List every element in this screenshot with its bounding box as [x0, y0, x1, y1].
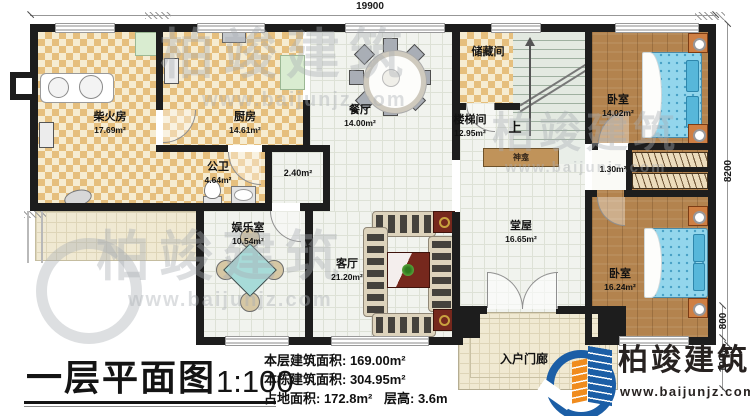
room-label-bath: 公卫4.64m² — [188, 161, 248, 185]
wall-right — [708, 24, 716, 345]
pillow-icon — [693, 234, 705, 262]
room-label-stairwell: 楼梯间12.95m² — [434, 114, 506, 138]
floor-plan-canvas: 神龛 — [0, 0, 750, 416]
wall-kitchen-south-a — [156, 145, 228, 152]
room-label-corridor: 2.40m² — [266, 168, 330, 179]
exterior-rail — [41, 211, 43, 263]
room-label-bedroom-bottom: 卧室16.24m² — [578, 268, 662, 292]
nightstand-lamp-icon — [688, 206, 708, 226]
exterior-hatch — [695, 12, 725, 20]
stat-building-area: 本栋建筑面积: 304.95m² — [264, 369, 406, 388]
window — [56, 24, 114, 32]
stair-up-arrowhead-icon — [525, 37, 535, 46]
dimension-right-label: 8200 — [724, 142, 734, 200]
dimension-top-label: 19900 — [340, 2, 400, 12]
french-door-leaf — [556, 272, 557, 308]
wall-storage-south-a — [452, 103, 466, 110]
watermark-text: 柏竣建筑 — [160, 28, 412, 82]
wall-hall-east — [585, 190, 592, 337]
title-underline — [24, 401, 276, 404]
room-label-bedroom-top: 卧室14.02m² — [578, 94, 658, 118]
room-label-living: 客厅21.20m² — [306, 258, 388, 282]
room-label-firewood: 柴火房17.69m² — [68, 111, 152, 135]
stove-burner-icon — [48, 77, 69, 98]
wall-bottom-left — [30, 203, 203, 211]
window — [492, 24, 540, 32]
brand-logo: 柏竣建筑 www.baijunjz.com — [540, 338, 750, 416]
porch-pier-left — [452, 306, 480, 338]
title-underline-thin — [24, 406, 276, 407]
plant-icon — [402, 264, 414, 276]
brand-url: www.baijunjz.com — [620, 384, 750, 399]
room-label-game: 娱乐室10.54m² — [205, 222, 291, 246]
brand-logo-building-blue-icon — [588, 346, 612, 406]
watermark-url: www.baijunjz.com — [128, 290, 333, 310]
wall-kitchen-south-b — [262, 145, 330, 152]
stat-floor-height: 层高: 3.6m — [384, 388, 448, 407]
nightstand-lamp-icon — [688, 298, 708, 318]
window — [616, 24, 698, 32]
wall-bed2-north-a — [592, 190, 597, 197]
wall-left — [30, 24, 38, 211]
chimney-flue — [16, 78, 32, 94]
gas-hob-icon — [39, 122, 54, 148]
stove-burner-icon — [79, 75, 103, 99]
room-label-hall: 堂屋16.65m² — [478, 220, 564, 244]
room-label-kitchen: 厨房14.61m² — [203, 111, 287, 135]
sofa-right — [428, 236, 455, 312]
stat-floor-area: 本层建筑面积: 169.00m² — [264, 350, 406, 369]
nightstand-lamp-icon — [688, 33, 708, 53]
stair-up-label: 上 — [506, 120, 524, 136]
wall-bed2-north-b — [624, 190, 716, 197]
porch-pier-right — [598, 306, 626, 338]
brand-name: 柏竣建筑 — [618, 344, 750, 377]
wall-dining-stair — [452, 24, 460, 160]
sofa-bottom-bench — [372, 313, 436, 337]
pillow-icon — [693, 263, 705, 291]
storage-room-floor — [460, 32, 513, 103]
window — [332, 337, 428, 345]
exterior-rail — [27, 211, 29, 263]
wall-hall-south-a — [478, 306, 487, 314]
stat-land-area: 占地面积: 172.8m² — [264, 388, 372, 407]
room-label-dining: 餐厅14.00m² — [318, 104, 402, 128]
bath-sink-bowl — [234, 189, 253, 201]
room-label-closet: 1.30m² — [588, 164, 638, 175]
kitchen-appliance-mat — [135, 32, 157, 56]
room-label-storage: 储藏间 — [460, 46, 516, 60]
wall-game-top — [203, 203, 272, 211]
coffee-table — [387, 252, 430, 288]
brand-logo-building-orange-icon — [572, 358, 587, 403]
nightstand-lamp-icon — [688, 124, 708, 144]
page-title: 一层平面图 — [26, 358, 216, 398]
french-door-leaf — [487, 272, 488, 308]
window — [226, 337, 288, 345]
wall-hall-south-b — [556, 306, 600, 314]
watermark-url: www.baijunjz.com — [505, 160, 666, 175]
dimension-line-top — [30, 15, 716, 16]
pillow-icon — [686, 60, 699, 92]
